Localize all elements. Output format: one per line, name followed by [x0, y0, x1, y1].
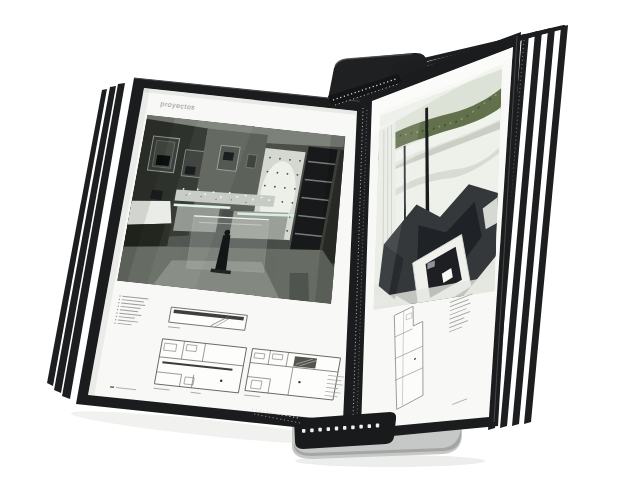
wall-display-panel-photo: proyectos	[0, 0, 640, 480]
right-display-panel	[350, 32, 521, 440]
product-photo-stage: proyectos	[0, 0, 640, 480]
